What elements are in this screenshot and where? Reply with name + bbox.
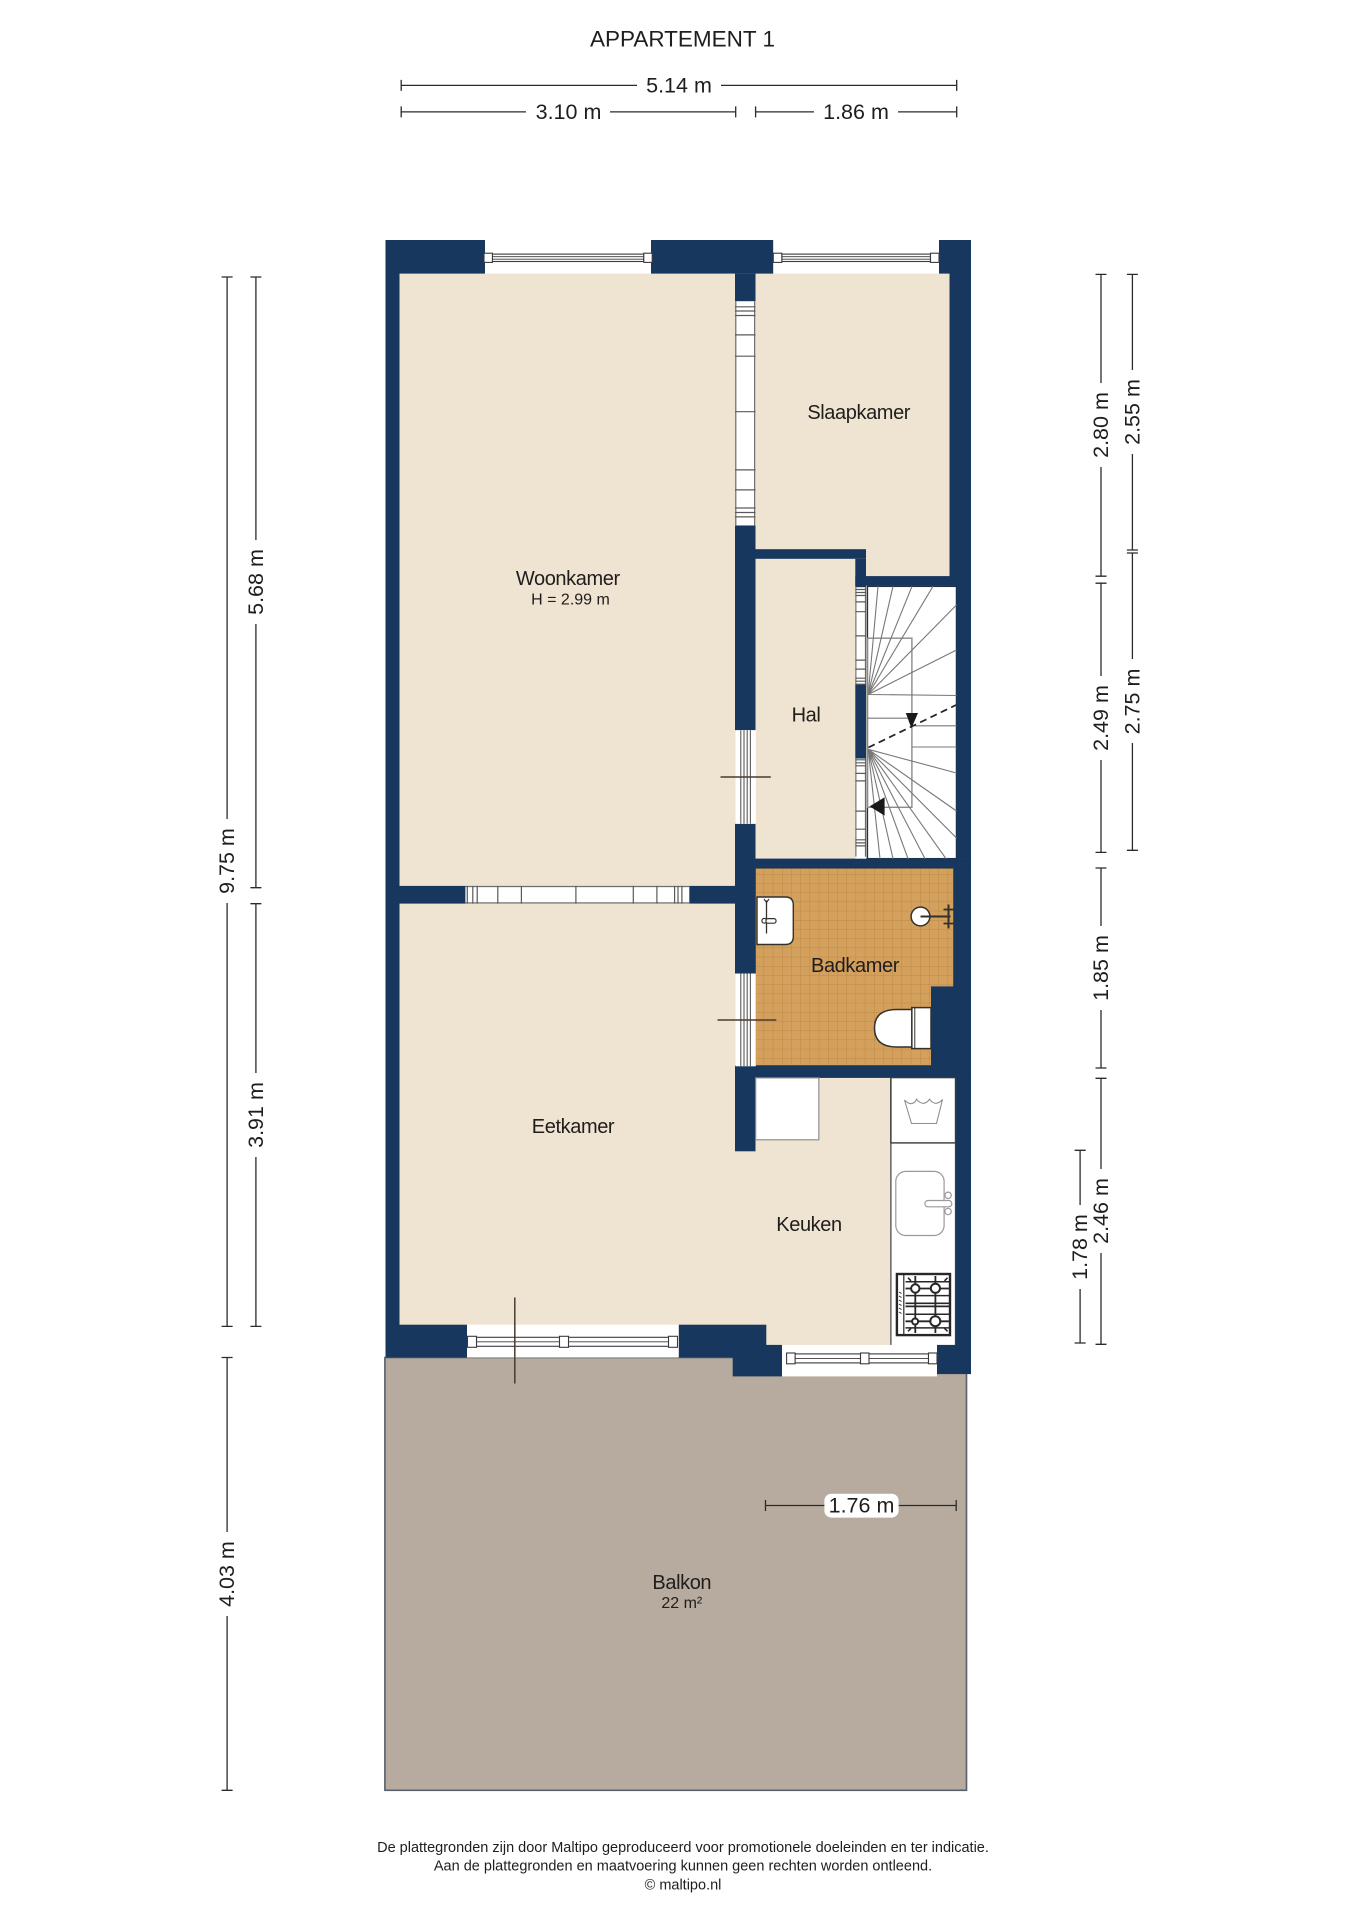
svg-text:Slaapkamer: Slaapkamer xyxy=(807,402,910,424)
svg-text:2.80 m: 2.80 m xyxy=(1089,392,1113,458)
svg-text:Badkamer: Badkamer xyxy=(811,955,900,977)
svg-text:2.46 m: 2.46 m xyxy=(1089,1178,1113,1244)
svg-text:2.55 m: 2.55 m xyxy=(1120,379,1144,445)
svg-text:© maltipo.nl: © maltipo.nl xyxy=(645,1878,722,1894)
svg-text:22 m²: 22 m² xyxy=(661,1595,703,1612)
svg-text:Aan de plattegronden en maatvo: Aan de plattegronden en maatvoering kunn… xyxy=(434,1859,932,1875)
svg-text:9.75 m: 9.75 m xyxy=(215,828,239,894)
svg-text:3.91 m: 3.91 m xyxy=(244,1082,268,1148)
svg-text:Woonkamer: Woonkamer xyxy=(516,568,621,590)
svg-text:5.68 m: 5.68 m xyxy=(244,549,268,615)
svg-text:APPARTEMENT 1: APPARTEMENT 1 xyxy=(590,27,775,52)
svg-text:Balkon: Balkon xyxy=(652,1572,711,1594)
svg-text:Hal: Hal xyxy=(792,705,821,727)
svg-text:5.14 m: 5.14 m xyxy=(646,74,712,98)
svg-text:1.85 m: 1.85 m xyxy=(1089,935,1113,1001)
svg-text:2.49 m: 2.49 m xyxy=(1089,685,1113,751)
svg-text:1.86 m: 1.86 m xyxy=(823,100,889,124)
svg-text:Eetkamer: Eetkamer xyxy=(532,1116,615,1138)
svg-text:De plattegronden zijn door Mal: De plattegronden zijn door Maltipo gepro… xyxy=(377,1840,989,1856)
svg-text:1.76 m: 1.76 m xyxy=(829,1494,895,1518)
svg-text:1.78 m: 1.78 m xyxy=(1068,1214,1092,1280)
svg-text:2.75 m: 2.75 m xyxy=(1120,669,1144,735)
svg-text:Keuken: Keuken xyxy=(776,1214,841,1236)
svg-text:4.03 m: 4.03 m xyxy=(215,1541,239,1607)
svg-text:3.10 m: 3.10 m xyxy=(536,100,602,124)
svg-text:H = 2.99 m: H = 2.99 m xyxy=(531,592,610,609)
